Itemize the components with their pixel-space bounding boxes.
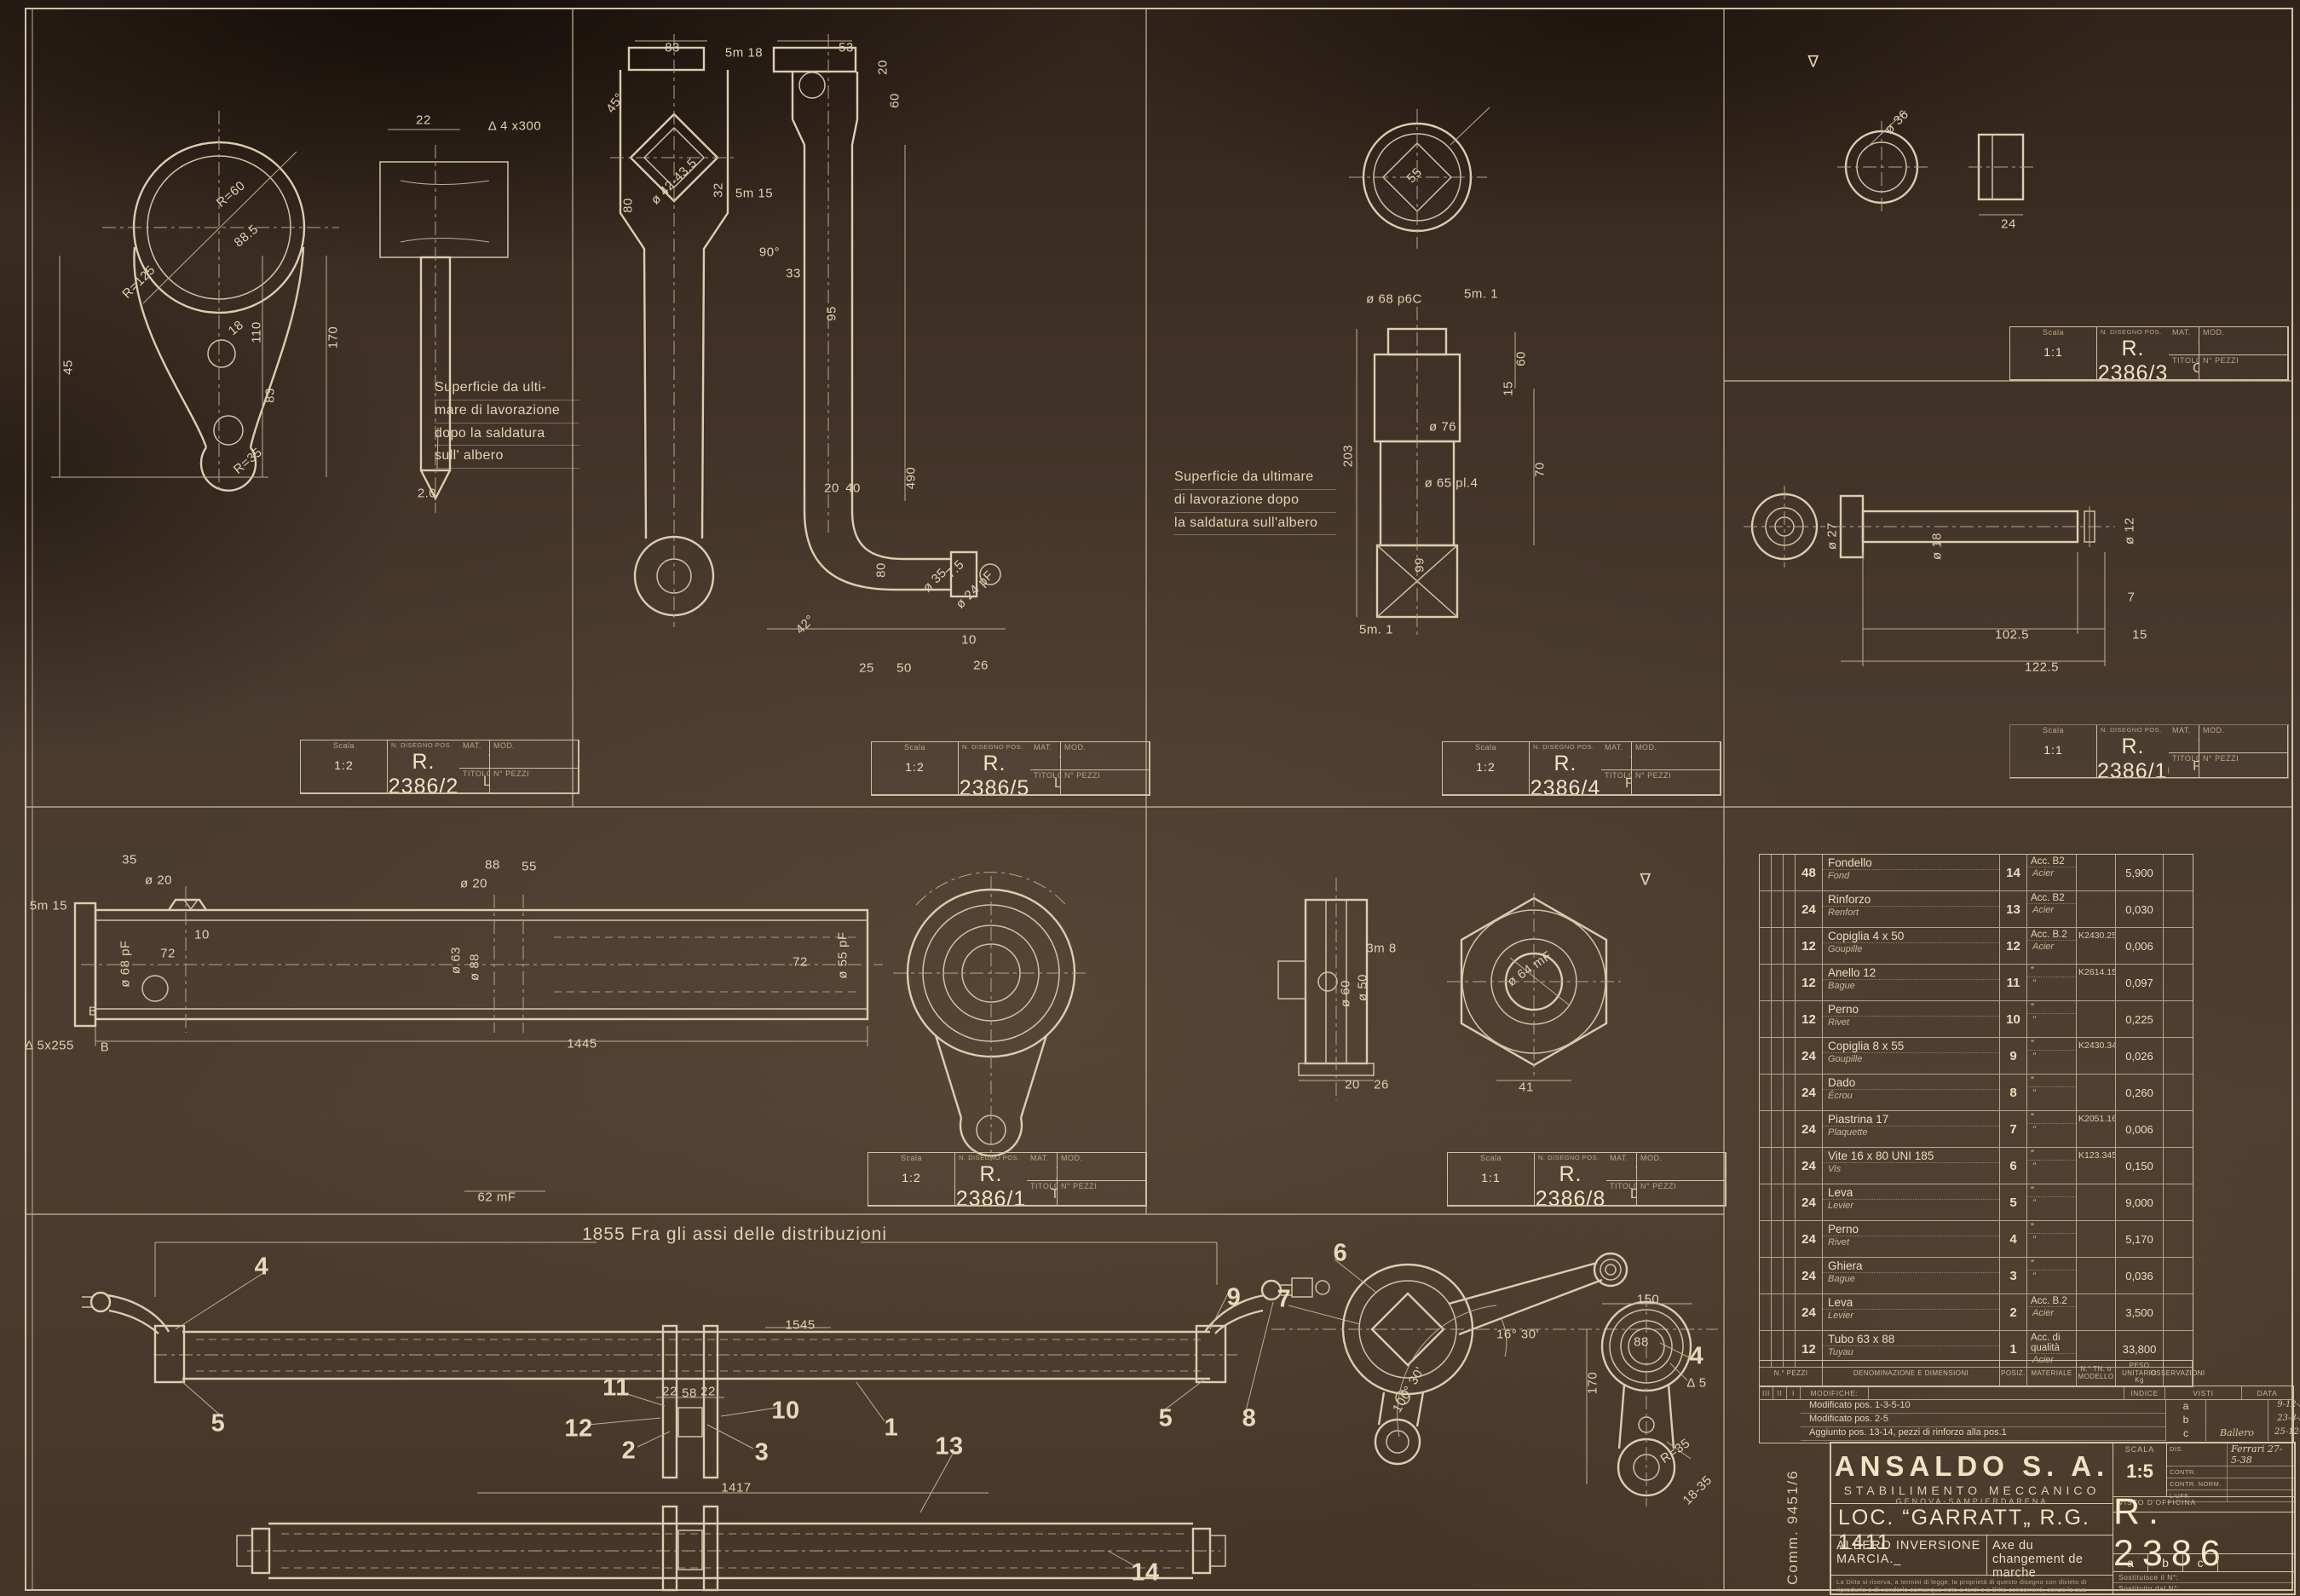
- dimension-label: 80: [621, 198, 636, 213]
- signature-row: DIS. Ferrari 27-5-38: [2167, 1443, 2294, 1466]
- part-position: 5: [2000, 1184, 2027, 1220]
- parts-table-row: 24 Ghiera Bague 3 ” ” 0,036: [1760, 1258, 2193, 1294]
- modifications-block: III II I MODIFICHE: INDICE VISTI DATA Mo…: [1759, 1386, 2294, 1443]
- dimension-label: 80: [874, 562, 889, 578]
- drawing-number: R. 2386: [2113, 1512, 2294, 1554]
- part-callout-number: 4: [255, 1253, 269, 1282]
- dimension-label: 99: [1413, 557, 1427, 573]
- part-position: 13: [2000, 891, 2027, 927]
- part-number-cell: N. DISEGNO POS. R. 2386/2: [388, 740, 459, 793]
- part-material: ” ”: [2027, 1075, 2077, 1110]
- parts-table-row: 48 Fondello Fond 14 Acc. B2 Acier 5,900: [1760, 855, 2193, 891]
- part-unit-weight: 0,036: [2116, 1258, 2164, 1294]
- panel-tubo-2386-1: [75, 873, 1089, 1191]
- dimension-label: ø 65 pl.4: [1425, 476, 1479, 491]
- dimension-label: 95: [825, 306, 839, 321]
- part-mod-cell: MOD.: [1637, 1153, 1726, 1181]
- dimension-label: 16° 30': [1496, 1328, 1539, 1342]
- dimension-label: 70: [1533, 462, 1548, 477]
- dimension-label: ø 63: [449, 947, 464, 974]
- part-model-number: [2077, 1184, 2116, 1220]
- part-title-block: MAT. Acc. B2 MOD. Scala 1:2 N. DISEGNO P…: [1442, 741, 1721, 796]
- dimension-label: 170: [326, 326, 341, 349]
- commission-number: Comm. 9451/6: [1774, 1397, 1795, 1593]
- part-material-cell: MAT. Acc. B2: [2169, 725, 2199, 753]
- part-title-cell: TITOLO Ghiera: [2169, 355, 2199, 380]
- part-material: ” ”: [2027, 1221, 2077, 1257]
- part-scale-cell: Scala 1:2: [301, 740, 388, 793]
- part-name: Copiglia 4 x 50 Goupille: [1823, 928, 2000, 964]
- part-model-number: K2051.16: [2077, 1111, 2116, 1147]
- parts-table-row: 24 Piastrina 17 Plaquette 7 ” ” K2051.16…: [1760, 1111, 2193, 1148]
- part-number-cell: N. DISEGNO POS. R. 2386/10: [2097, 725, 2169, 778]
- part-model-number: K2430.259: [2077, 928, 2116, 964]
- part-material: ” ”: [2027, 1258, 2077, 1294]
- dimension-label: 55: [1404, 165, 1426, 187]
- dimension-label: ø 36: [1882, 107, 1912, 137]
- dimension-label: 45: [61, 360, 76, 375]
- part-qty-cell: N° PEZZI: [1058, 1181, 1146, 1206]
- revision-index-strip: a b c: [2113, 1554, 2294, 1572]
- part-qty: 12: [1796, 928, 1823, 964]
- part-model-number: [2077, 1075, 2116, 1110]
- part-qty-cell: N° PEZZI: [490, 769, 579, 793]
- part-title-cell: TITOLO Perno: [1601, 770, 1632, 795]
- part-name: Copiglia 8 x 55 Goupille: [1823, 1038, 2000, 1074]
- scale-value: 1:5: [2113, 1461, 2166, 1483]
- dimension-label: 122.5: [2025, 660, 2059, 675]
- part-material: ” ”: [2027, 965, 2077, 1000]
- part-material-cell: MAT. Acc. B2: [1606, 1153, 1637, 1181]
- parts-table-row: 24 Copiglia 8 x 55 Goupille 9 ” ” K2430.…: [1760, 1038, 2193, 1075]
- part-unit-weight: 5,170: [2116, 1221, 2164, 1257]
- dimension-label: 58: [682, 1386, 697, 1401]
- parts-list-table: 48 Fondello Fond 14 Acc. B2 Acier 5,900: [1759, 854, 2193, 1368]
- part-scale-cell: Scala 1:2: [868, 1153, 955, 1206]
- dimension-label: 45°: [603, 90, 627, 116]
- dimension-label: 32: [712, 182, 726, 198]
- part-material: ” ”: [2027, 1148, 2077, 1184]
- dimension-label: ø 50: [1356, 974, 1370, 1001]
- signature-value: Ferrari 27-5-38: [2228, 1443, 2294, 1466]
- dimension-label: 3m 8: [1366, 942, 1396, 956]
- part-title-block: MAT. Acc. B.2 MOD. Scala 1:1 N. DISEGNO …: [2009, 326, 2289, 381]
- part-model-number: [2077, 1221, 2116, 1257]
- dimension-label: 53: [839, 41, 854, 55]
- dimension-label: 5m 18: [725, 46, 763, 60]
- dimension-label: 110: [250, 321, 264, 343]
- part-callout-number: 14: [1131, 1559, 1159, 1587]
- dimension-label: 170: [1586, 1372, 1600, 1395]
- parts-table-header-row: N.° PEZZI DENOMINAZIONE E DIMENSIONI POS…: [1759, 1360, 2193, 1387]
- dimension-label: 42°: [793, 612, 817, 637]
- dimension-label: ø 76: [1429, 420, 1456, 435]
- part-title-cell: TITOLO Tubo: [1027, 1181, 1058, 1206]
- dimension-label: 90°: [759, 245, 780, 260]
- part-unit-weight: 0,026: [2116, 1038, 2164, 1074]
- dimension-label: 5m. 1: [1359, 623, 1393, 637]
- part-callout-number: 9: [1227, 1284, 1242, 1312]
- part-qty: 48: [1796, 855, 1823, 890]
- part-mod-cell: MOD.: [2199, 725, 2288, 753]
- part-unit-weight: 0,006: [2116, 1111, 2164, 1147]
- dimension-label: 33: [786, 267, 801, 281]
- part-material: Acc. B.2 Acier: [2027, 928, 2077, 964]
- signature-value: [2228, 1466, 2294, 1478]
- part-mod-cell: MOD.: [1061, 742, 1150, 770]
- part-scale-cell: Scala 1:1: [2010, 327, 2097, 380]
- part-qty: 24: [1796, 1148, 1823, 1184]
- part-position: 2: [2000, 1294, 2027, 1330]
- dimension-label: 106° 30': [1390, 1364, 1427, 1415]
- part-number-cell: N. DISEGNO POS. R. 2386/3: [2097, 327, 2169, 380]
- part-position: 8: [2000, 1075, 2027, 1110]
- modification-row: Modificato pos. 1-3-5-10 a 9-12-38: [1760, 1400, 2293, 1414]
- sostituito-label: Sostituito dal N°:: [2113, 1583, 2294, 1593]
- part-scale-cell: Scala 1:2: [1443, 742, 1530, 795]
- part-position: 6: [2000, 1148, 2027, 1184]
- part-qty: 24: [1796, 1075, 1823, 1110]
- signature-row: CONTR. NORM.: [2167, 1478, 2294, 1490]
- dimension-label: 50: [896, 661, 912, 676]
- dimension-label: 1855 Fra gli assi delle distribuzioni: [582, 1224, 887, 1245]
- part-mod-cell: MOD.: [1632, 742, 1721, 770]
- dimension-label: 10: [194, 928, 210, 942]
- scale-cell: SCALA 1:5: [2113, 1443, 2167, 1496]
- part-callout-number: 12: [564, 1415, 592, 1443]
- dimension-label: ø 88: [468, 954, 482, 981]
- dimension-label: 22: [662, 1385, 677, 1399]
- dimension-label: ø 60: [1339, 980, 1353, 1007]
- panel-perno-2386-10: [1744, 486, 2115, 666]
- part-qty: 24: [1796, 1294, 1823, 1330]
- blueprint-sheet: R=6088.5R=125181101704583R=3522Δ 4 x3002…: [0, 0, 2300, 1596]
- company-division: STABILIMENTO MECCANICO: [1831, 1484, 2113, 1497]
- dimension-label: 83: [665, 41, 680, 55]
- dimension-label: 5m. 1: [1464, 287, 1498, 302]
- part-callout-number: 13: [935, 1433, 963, 1461]
- dimension-label: 22: [700, 1385, 716, 1399]
- dimension-label: 18: [226, 318, 246, 338]
- dimension-label: ø 18: [1930, 533, 1945, 560]
- dimension-label: ø 68 pF: [118, 940, 133, 987]
- dimension-label: 88: [485, 858, 500, 873]
- part-title-cell: TITOLO Leva: [1030, 770, 1061, 795]
- part-callout-number: 7: [1277, 1286, 1292, 1314]
- part-number-cell: N. DISEGNO POS. R. 2386/5: [959, 742, 1030, 795]
- part-material-cell: MAT. Acc. B.2: [2169, 327, 2199, 355]
- dimension-label: 88: [1634, 1335, 1649, 1350]
- part-scale-cell: Scala 1:1: [1448, 1153, 1535, 1206]
- signature-row: CONTR.: [2167, 1466, 2294, 1478]
- parts-table-row: 24 Perno Rivet 4 ” ” 5,170: [1760, 1221, 2193, 1258]
- dimension-label: 26: [973, 659, 989, 673]
- dimension-label: ø 20: [460, 877, 487, 891]
- dimension-label: Δ 4 x300: [488, 119, 541, 134]
- parts-table-row: 24 Leva Levier 2 Acc. B.2 Acier 3,500: [1760, 1294, 2193, 1331]
- part-position: 10: [2000, 1001, 2027, 1037]
- project-name: LOC. “GARRATT„ R.G. 1411: [1831, 1504, 2113, 1536]
- dimension-label: 88.5: [232, 222, 262, 250]
- part-callout-number: 11: [602, 1374, 630, 1403]
- part-unit-weight: 0,260: [2116, 1075, 2164, 1110]
- part-qty: 24: [1796, 1038, 1823, 1074]
- part-position: 4: [2000, 1221, 2027, 1257]
- part-material: Acc. B2 Acier: [2027, 891, 2077, 927]
- dimension-label: 15: [2132, 628, 2147, 642]
- part-mod-cell: MOD.: [1058, 1153, 1146, 1181]
- part-qty-cell: N° PEZZI: [1061, 770, 1150, 795]
- dimension-label: 10: [961, 633, 977, 648]
- part-scale-cell: Scala 1:1: [2010, 725, 2097, 778]
- dimension-label: B: [101, 1040, 110, 1055]
- part-unit-weight: 0,030: [2116, 891, 2164, 927]
- part-mod-cell: MOD.: [2199, 327, 2288, 355]
- dimension-label: 24: [2001, 217, 2016, 232]
- part-callout-number: 8: [1242, 1405, 1257, 1433]
- dimension-label: 62 mF: [477, 1190, 516, 1205]
- part-name: Rinforzo Renfort: [1823, 891, 2000, 927]
- panel-leva-2386-5: [610, 34, 1006, 629]
- part-qty: 12: [1796, 1001, 1823, 1037]
- part-name: Perno Rivet: [1823, 1001, 2000, 1037]
- part-callout-number: 4: [1690, 1343, 1704, 1371]
- part-model-number: [2077, 1294, 2116, 1330]
- dimension-label: 20: [1345, 1078, 1360, 1092]
- dimension-label: Δ 5x255: [25, 1039, 74, 1053]
- company-header: ANSALDO S. A. STABILIMENTO MECCANICO GEN…: [1831, 1443, 2113, 1504]
- part-name: Vite 16 x 80 UNI 185 Vis: [1823, 1148, 2000, 1184]
- dimension-label: 22: [416, 113, 431, 128]
- part-qty-cell: N° PEZZI: [1637, 1181, 1726, 1206]
- dimension-label: 40: [845, 481, 861, 496]
- part-name: Piastrina 17 Plaquette: [1823, 1111, 2000, 1147]
- part-material: Acc. B.2 Acier: [2027, 1294, 2077, 1330]
- part-unit-weight: 0,006: [2116, 928, 2164, 964]
- panel-ghiera-2386-3: [1837, 111, 2035, 215]
- dimension-label: 1445: [567, 1037, 597, 1052]
- dimension-label: ø 27: [1825, 522, 1840, 550]
- signature-value: [2228, 1478, 2294, 1489]
- dimension-label: R=125: [119, 262, 158, 301]
- part-qty-cell: N° PEZZI: [1632, 770, 1721, 795]
- part-position: 11: [2000, 965, 2027, 1000]
- part-position: 9: [2000, 1038, 2027, 1074]
- part-material: ” ”: [2027, 1038, 2077, 1074]
- part-material-cell: MAT. Acc. B.2: [459, 740, 490, 769]
- dimension-label: 20: [824, 481, 839, 496]
- dimension-label: 60: [1514, 351, 1529, 366]
- dimension-label: 41: [1519, 1080, 1534, 1095]
- part-material-cell: MAT. Acc. B.2: [1030, 742, 1061, 770]
- dimension-label: 35: [122, 853, 137, 867]
- part-name: Ghiera Bague: [1823, 1258, 2000, 1294]
- part-callout-number: 1: [885, 1415, 899, 1443]
- dimension-label: 7: [2128, 591, 2136, 605]
- dimension-label: 1417: [721, 1481, 751, 1495]
- dimension-label: 490: [904, 467, 919, 490]
- machining-note-1: Superficie da ulti- mare di lavorazione …: [435, 377, 579, 469]
- dimension-label: ø 64 mF: [1505, 948, 1554, 989]
- dimension-label: 5m 15: [735, 187, 773, 201]
- dimension-label: 15: [1502, 381, 1516, 396]
- part-unit-weight: 0,150: [2116, 1148, 2164, 1184]
- company-name: ANSALDO S. A.: [1831, 1450, 2113, 1483]
- dimension-label: 102.5: [1995, 628, 2029, 642]
- drawing-title-italian: ALBERO INVERSIONE MARCIA._: [1831, 1536, 1987, 1575]
- part-unit-weight: 5,900: [2116, 855, 2164, 890]
- part-model-number: [2077, 855, 2116, 890]
- dimension-label: 2.0: [418, 487, 436, 501]
- modifications-header: III II I MODIFICHE: INDICE VISTI DATA: [1760, 1386, 2293, 1400]
- panel-assembly: [82, 1242, 1718, 1590]
- part-position: 12: [2000, 928, 2027, 964]
- part-material-cell: MAT. Acc. B2: [1601, 742, 1632, 770]
- dimension-label: ∇: [1640, 871, 1651, 890]
- dimension-label: 72: [160, 947, 176, 961]
- dimension-label: 83: [263, 388, 278, 403]
- part-title-cell: TITOLO Perno: [2169, 753, 2199, 778]
- panel-dado-2386-8: [1278, 878, 1621, 1101]
- dimension-label: 203: [1341, 445, 1356, 468]
- parts-table-row: 24 Leva Levier 5 ” ” 9,000: [1760, 1184, 2193, 1221]
- part-title-cell: TITOLO Leva: [459, 769, 490, 793]
- part-material: ” ”: [2027, 1184, 2077, 1220]
- part-name: Leva Levier: [1823, 1184, 2000, 1220]
- part-unit-weight: 0,097: [2116, 965, 2164, 1000]
- part-title-block: MAT. Acc. di qualità MOD. Scala 1:2 N. D…: [868, 1152, 1147, 1207]
- dimension-label: 72: [793, 955, 808, 970]
- part-title-block: MAT. Acc. B2 MOD. Scala 1:1 N. DISEGNO P…: [1447, 1152, 1726, 1207]
- part-mod-cell: MOD.: [490, 740, 579, 769]
- modification-row: Modificato pos. 2-5 b 23-8-39: [1760, 1414, 2293, 1427]
- part-model-number: [2077, 891, 2116, 927]
- part-name: Fondello Fond: [1823, 855, 2000, 890]
- legal-notice: La Ditta si riserva, a termini di legge,…: [1831, 1576, 2113, 1596]
- part-number-cell: N. DISEGNO POS. R. 2386/1: [955, 1153, 1027, 1206]
- dimension-label: B: [89, 1005, 98, 1019]
- part-material: Acc. B2 Acier: [2027, 855, 2077, 890]
- dimension-label: ∇: [1807, 53, 1819, 72]
- dimension-label: 1545: [785, 1318, 815, 1333]
- part-unit-weight: 9,000: [2116, 1184, 2164, 1220]
- part-scale-cell: Scala 1:2: [872, 742, 959, 795]
- dimension-label: ø 20: [145, 873, 172, 888]
- part-name: Anello 12 Bague: [1823, 965, 2000, 1000]
- dimension-label: 60: [888, 93, 902, 108]
- part-unit-weight: 0,225: [2116, 1001, 2164, 1037]
- dimension-label: R=60: [214, 178, 248, 210]
- part-position: 7: [2000, 1111, 2027, 1147]
- part-material-cell: MAT. Acc. di qualità: [1027, 1153, 1058, 1181]
- part-model-number: [2077, 1258, 2116, 1294]
- part-unit-weight: 3,500: [2116, 1294, 2164, 1330]
- part-position: 3: [2000, 1258, 2027, 1294]
- panel-perno-2386-4: [1349, 107, 1534, 637]
- part-callout-number: 10: [771, 1397, 799, 1426]
- dimension-label: ø 12: [2123, 517, 2137, 544]
- part-qty: 24: [1796, 1184, 1823, 1220]
- parts-table-row: 24 Rinforzo Renfort 13 Acc. B2 Acier 0,0…: [1760, 891, 2193, 928]
- dimension-label: R=35: [1657, 1436, 1692, 1466]
- part-material: ” ”: [2027, 1001, 2077, 1037]
- part-qty: 24: [1796, 891, 1823, 927]
- dimension-label: 26: [1374, 1078, 1389, 1092]
- part-qty: 12: [1796, 965, 1823, 1000]
- part-callout-number: 6: [1334, 1240, 1348, 1268]
- part-callout-number: 3: [755, 1439, 770, 1467]
- part-position: 14: [2000, 855, 2027, 890]
- part-name: Leva Levier: [1823, 1294, 2000, 1330]
- part-model-number: [2077, 1001, 2116, 1037]
- part-model-number: K2614.15: [2077, 965, 2116, 1000]
- parts-table-row: 12 Copiglia 4 x 50 Goupille 12 Acc. B.2 …: [1760, 928, 2193, 965]
- part-qty: 24: [1796, 1258, 1823, 1294]
- part-callout-number: 5: [1159, 1405, 1173, 1433]
- dimension-label: 18-35: [1680, 1473, 1715, 1508]
- part-model-number: K2430.343: [2077, 1038, 2116, 1074]
- part-qty-cell: N° PEZZI: [2199, 355, 2288, 380]
- part-name: Perno Rivet: [1823, 1221, 2000, 1257]
- parts-table-row: 12 Anello 12 Bague 11 ” ” K2614.15 0,097: [1760, 965, 2193, 1001]
- dimension-label: ø 55 pF: [836, 931, 850, 978]
- part-callout-number: 2: [622, 1438, 637, 1466]
- dimension-label: 20: [876, 60, 891, 75]
- part-model-number: K123.345: [2077, 1148, 2116, 1184]
- dimension-label: 150: [1637, 1293, 1660, 1307]
- part-qty: 24: [1796, 1221, 1823, 1257]
- sostituisce-label: Sostituisce il N°:: [2113, 1572, 2294, 1583]
- part-material: ” ”: [2027, 1111, 2077, 1147]
- part-name: Dado Écrou: [1823, 1075, 2000, 1110]
- dimension-label: 25: [859, 661, 874, 676]
- dimension-label: Δ 5: [1686, 1376, 1706, 1391]
- parts-table-row: 12 Perno Rivet 10 ” ” 0,225: [1760, 1001, 2193, 1038]
- machining-note-2: Superficie da ultimare di lavorazione do…: [1174, 467, 1336, 535]
- part-number-cell: N. DISEGNO POS. R. 2386/4: [1530, 742, 1601, 795]
- part-number-cell: N. DISEGNO POS. R. 2386/8: [1535, 1153, 1606, 1206]
- part-callout-number: 5: [211, 1410, 226, 1438]
- dimension-label: ø 42-43.5: [648, 156, 700, 208]
- dimension-label: 55: [522, 860, 537, 874]
- title-block: ANSALDO S. A. STABILIMENTO MECCANICO GEN…: [1830, 1442, 2296, 1595]
- modification-row: Aggiunto pos. 13-14, pezzi di rinforzo a…: [1760, 1427, 2293, 1441]
- part-qty-cell: N° PEZZI: [2199, 753, 2288, 778]
- part-qty: 24: [1796, 1111, 1823, 1147]
- drawing-title-french: Axe du changement de marche: [1987, 1536, 2113, 1575]
- part-title-cell: TITOLO Dado: [1606, 1181, 1637, 1206]
- dimension-label: 5m 15: [30, 899, 67, 913]
- part-title-block: MAT. Acc. B.2 MOD. Scala 1:2 N. DISEGNO …: [300, 740, 579, 794]
- part-title-block: MAT. Acc. B2 MOD. Scala 1:1 N. DISEGNO P…: [2009, 724, 2289, 779]
- signature-rows: DIS. Ferrari 27-5-38 CONTR. CONTR. NORM.: [2167, 1443, 2294, 1496]
- dimension-label: ø 68 p6C: [1366, 292, 1422, 307]
- parts-table-row: 24 Dado Écrou 8 ” ” 0,260: [1760, 1075, 2193, 1111]
- parts-table-row: 24 Vite 16 x 80 UNI 185 Vis 6 ” ” K123.3…: [1760, 1148, 2193, 1184]
- dimension-label: R=35: [231, 445, 265, 477]
- part-title-block: MAT. Acc. B.2 MOD. Scala 1:2 N. DISEGNO …: [871, 741, 1150, 796]
